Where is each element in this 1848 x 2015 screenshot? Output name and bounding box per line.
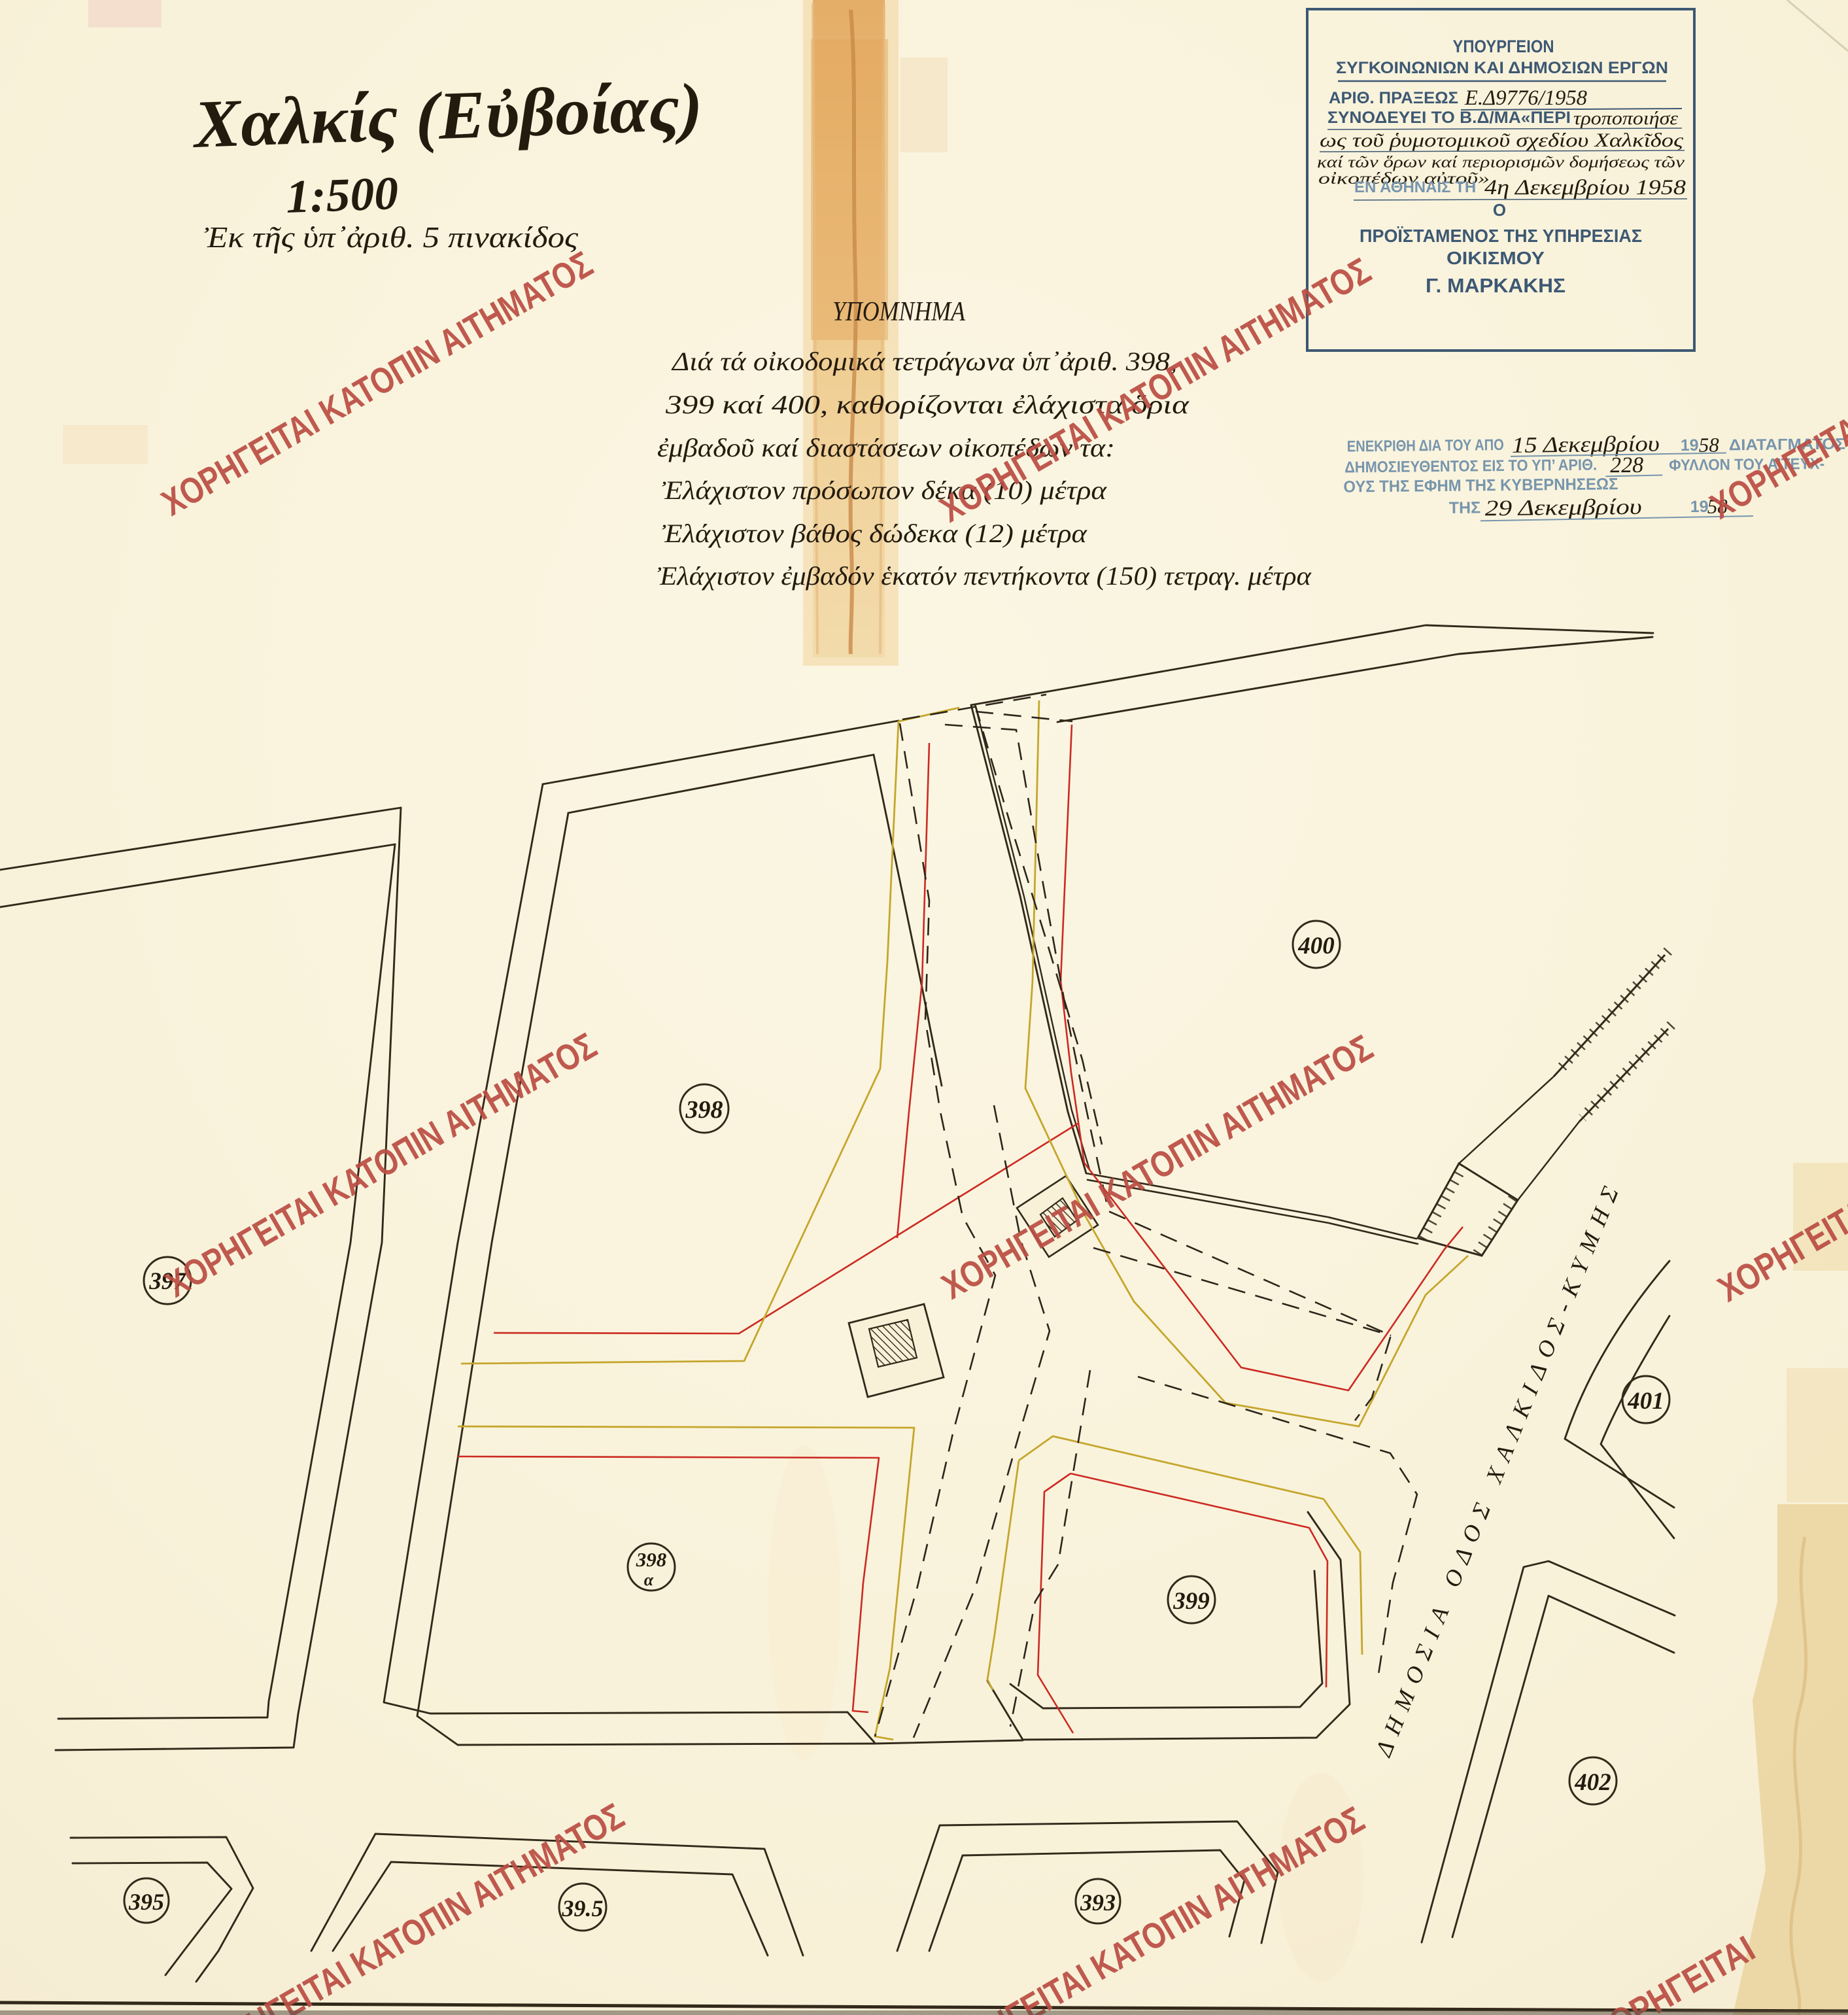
svg-text:398: 398 [685, 1096, 723, 1124]
svg-text:19: 19 [1690, 498, 1709, 516]
svg-text:Ο: Ο [1493, 200, 1506, 220]
svg-text:4η Δεκεμβρίου 1958: 4η Δεκεμβρίου 1958 [1484, 176, 1686, 199]
svg-text:ΕΝΕΚΡΙΘΗ ΔΙΑ ΤΟΥ ΑΠΟ: ΕΝΕΚΡΙΘΗ ΔΙΑ ΤΟΥ ΑΠΟ [1347, 436, 1504, 456]
svg-text:α: α [644, 1570, 654, 1589]
svg-text:402: 402 [1574, 1769, 1611, 1796]
svg-text:399: 399 [1172, 1588, 1210, 1615]
svg-text:Ἐλάχιστον βάθος δώδεκα (12) μέ: Ἐλάχιστον βάθος δώδεκα (12) μέτρα [662, 519, 1087, 548]
svg-text:ΟΙΚΙΣΜΟΥ: ΟΙΚΙΣΜΟΥ [1446, 248, 1545, 268]
svg-text:Διά τά οἰκοδομικά τετράγωνα ὑπ: Διά τά οἰκοδομικά τετράγωνα ὑπ᾽ἀριθ. 398… [671, 347, 1177, 376]
svg-text:Γ. ΜΑΡΚΑΚΗΣ: Γ. ΜΑΡΚΑΚΗΣ [1426, 274, 1566, 297]
svg-text:καί τῶν ὅρων καί περιορισμῶν δ: καί τῶν ὅρων καί περιορισμῶν δομήσεως τῶ… [1317, 154, 1685, 171]
svg-text:ΤΗΣ: ΤΗΣ [1449, 498, 1481, 517]
svg-text:228: 228 [1610, 453, 1643, 478]
svg-text:τροποποιήσε: τροποποιήσε [1573, 109, 1678, 129]
svg-text:29 Δεκεμβρίου: 29 Δεκεμβρίου [1485, 495, 1642, 521]
svg-text:ΥΠΟΜΝΗΜΑ: ΥΠΟΜΝΗΜΑ [832, 297, 965, 327]
svg-text:ΣΥΝΟΔΕΥΕΙ ΤΟ Β.Δ/ΜΑ«ΠΕΡΙ: ΣΥΝΟΔΕΥΕΙ ΤΟ Β.Δ/ΜΑ«ΠΕΡΙ [1327, 109, 1571, 127]
svg-text:19: 19 [1681, 436, 1699, 455]
svg-text:39.5: 39.5 [562, 1895, 604, 1921]
svg-text:1:500: 1:500 [285, 167, 400, 223]
svg-text:ΑΡΙΘ. ΠΡΑΞΕΩΣ: ΑΡΙΘ. ΠΡΑΞΕΩΣ [1329, 89, 1458, 107]
svg-text:393: 393 [1080, 1889, 1116, 1916]
svg-text:ΣΥΓΚΟΙΝΩΝΙΩΝ ΚΑΙ ΔΗΜΟΣΙΩΝ ΕΡΓΩ: ΣΥΓΚΟΙΝΩΝΙΩΝ ΚΑΙ ΔΗΜΟΣΙΩΝ ΕΡΓΩΝ [1336, 59, 1668, 77]
svg-text:Ἐλάχιστον ἐμβαδόν ἑκατόν πεντή: Ἐλάχιστον ἐμβαδόν ἑκατόν πεντήκοντα (150… [657, 561, 1312, 591]
svg-text:Ε.Δ9776/1958: Ε.Δ9776/1958 [1464, 86, 1587, 110]
svg-text:395: 395 [128, 1889, 164, 1915]
svg-text:ΠΡΟΪΣΤΑΜΕΝΟΣ ΤΗΣ ΥΠΗΡΕΣΙΑΣ: ΠΡΟΪΣΤΑΜΕΝΟΣ ΤΗΣ ΥΠΗΡΕΣΙΑΣ [1360, 226, 1642, 246]
svg-text:ΕΝ ΑΘΗΝΑΙΣ ΤΗ: ΕΝ ΑΘΗΝΑΙΣ ΤΗ [1354, 179, 1476, 196]
svg-text:ΔΗΜΟΣΙΕΥΘΕΝΤΟΣ ΕΙΣ ΤΟ ΥΠ’ ΑΡΙΘ: ΔΗΜΟΣΙΕΥΘΕΝΤΟΣ ΕΙΣ ΤΟ ΥΠ’ ΑΡΙΘ. [1344, 456, 1597, 477]
svg-text:ΥΠΟΥΡΓΕΙΟΝ: ΥΠΟΥΡΓΕΙΟΝ [1453, 37, 1554, 56]
svg-text:ΟΥΣ ΤΗΣ ΕΦΗΜ ΤΗΣ ΚΥΒΕΡΝΗΣΕΩΣ: ΟΥΣ ΤΗΣ ΕΦΗΜ ΤΗΣ ΚΥΒΕΡΝΗΣΕΩΣ [1343, 475, 1618, 496]
svg-text:401: 401 [1627, 1388, 1664, 1415]
svg-text:398: 398 [636, 1548, 667, 1571]
svg-text:Ἐκ τῆς ὑπ᾽ἀριθ. 5 πινακίδος: Ἐκ τῆς ὑπ᾽ἀριθ. 5 πινακίδος [204, 220, 578, 254]
svg-text:400: 400 [1297, 933, 1335, 959]
svg-text:ως τοῦ ῥυμοτομικοῦ σχεδίου Χαλ: ως τοῦ ῥυμοτομικοῦ σχεδίου Χαλκῖδος [1320, 129, 1684, 151]
